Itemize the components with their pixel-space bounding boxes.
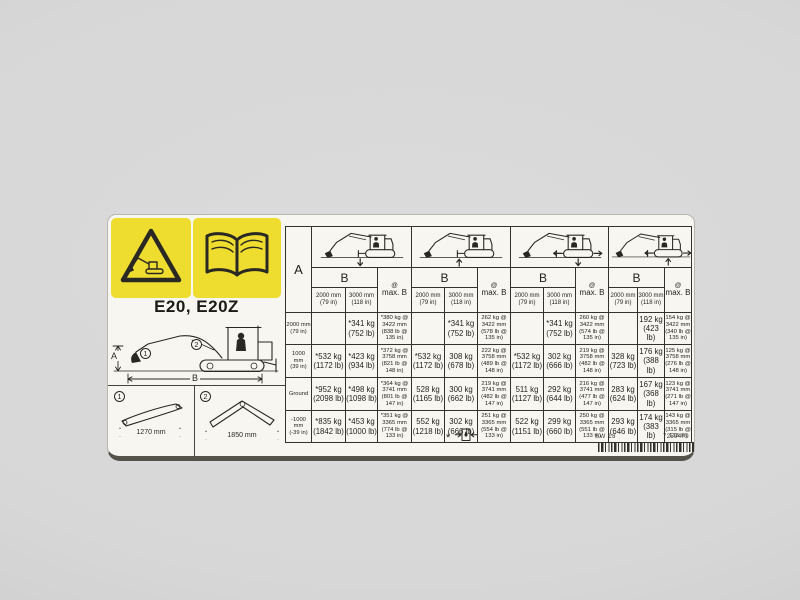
max-b-label: max. B	[382, 288, 407, 297]
capacity-cell: 123 kg @ 3741 mm (271 lb @ 147 in)	[665, 378, 692, 411]
b-header: B	[511, 268, 576, 288]
max-b-header: @max. B	[378, 268, 412, 313]
col-header-3000: 3000 mm (118 in)	[544, 288, 576, 313]
capacity-cell: 511 kg (1127 lb)	[511, 378, 544, 411]
manual-panel	[193, 218, 281, 298]
max-b-label: max. B	[482, 288, 507, 297]
over-side-blade-up-icon	[609, 227, 692, 268]
dim-b-label: B	[190, 373, 200, 383]
footnote-star: *	[446, 432, 450, 444]
capacity-cell: 262 kg @ 3422 mm (578 lb @ 135 in)	[478, 313, 511, 345]
capacity-cell: 302 kg (666 lb)	[544, 345, 576, 378]
capacity-cell	[412, 313, 445, 345]
row-header: Ground	[286, 378, 312, 411]
capacity-cell: 260 kg @ 3422 mm (574 lb @ 135 in)	[576, 313, 609, 345]
b-header: B	[312, 268, 378, 288]
capacity-cell	[511, 313, 544, 345]
part-number: 7259479	[663, 434, 689, 440]
capacity-cell: *498 kg (1098 lb)	[346, 378, 378, 411]
capacity-cell: *835 kg (1842 lb)	[312, 411, 346, 443]
max-b-header: @max. B	[478, 268, 511, 313]
capacity-cell: 522 kg (1151 lb)	[511, 411, 544, 443]
capacity-cell: 300 kg (662 lb)	[445, 378, 478, 411]
capacity-cell: 308 kg (678 lb)	[445, 345, 478, 378]
capacity-cell: 292 kg (644 lb)	[544, 378, 576, 411]
capacity-cell: 222 kg @ 3758 mm (489 lb @ 148 in)	[478, 345, 511, 378]
col-header-2000: 2000 mm (79 in)	[312, 288, 346, 313]
capacity-cell: 154 kg @ 3422 mm (340 lb @ 135 in)	[665, 313, 692, 345]
footnote: *	[446, 427, 479, 448]
capacity-cell: *380 kg @ 3422 mm (838 lb @ 135 in)	[378, 313, 412, 345]
capacity-cell: 192 kg (423 lb)	[638, 313, 665, 345]
capacity-cell: *453 kg (1000 lb)	[346, 411, 378, 443]
divider	[108, 385, 285, 386]
photo-background: E20, E20Z	[0, 0, 800, 600]
capacity-cell: *341 kg (752 lb)	[544, 313, 576, 345]
capacity-cell: 125 kg @ 3758 mm (276 lb @ 148 in)	[665, 345, 692, 378]
read-operators-manual-book-icon	[201, 229, 273, 288]
capacity-cell: 219 kg @ 3758 mm (482 lb @ 148 in)	[576, 345, 609, 378]
row-header: 2000 mm (79 in)	[286, 313, 312, 345]
option-1-width: 1270 mm	[116, 429, 186, 436]
capacity-cell: *364 kg @ 3741 mm (801 lb @ 147 in)	[378, 378, 412, 411]
capacity-cell: *532 kg (1172 lb)	[312, 345, 346, 378]
divider	[194, 385, 195, 457]
sw-code: SW 18	[595, 434, 616, 440]
capacity-cell: *372 kg @ 3758 mm (821 lb @ 148 in)	[378, 345, 412, 378]
capacity-cell: 283 kg (624 lb)	[609, 378, 638, 411]
capacity-cell: 176 kg (388 lb)	[638, 345, 665, 378]
col-header-2000: 2000 mm (79 in)	[609, 288, 638, 313]
over-side-blade-down-icon	[511, 227, 609, 268]
capacity-cell: *351 kg @ 3365 mm (774 lb @ 133 in)	[378, 411, 412, 443]
capacity-cell: 328 kg (723 lb)	[609, 345, 638, 378]
col-header-3000: 3000 mm (118 in)	[445, 288, 478, 313]
option-2-width: 1850 mm	[202, 432, 282, 439]
col-header-2000: 2000 mm (79 in)	[412, 288, 445, 313]
row-header: 1000 mm (39 in)	[286, 345, 312, 378]
capacity-cell: 174 kg (383 lb)	[638, 411, 665, 443]
max-b-label: max. B	[580, 288, 605, 297]
row-header: -1000 mm (-39 in)	[286, 411, 312, 443]
capacity-decal: E20, E20Z	[107, 214, 695, 461]
capacity-cell: 528 kg (1165 lb)	[412, 378, 445, 411]
barcode	[598, 442, 694, 452]
max-b-header: @max. B	[665, 268, 692, 313]
capacity-cell: *341 kg (752 lb)	[346, 313, 378, 345]
capacity-cell: *532 kg (1172 lb)	[511, 345, 544, 378]
model-title: E20, E20Z	[108, 297, 285, 317]
capacity-cell: *952 kg (2098 lb)	[312, 378, 346, 411]
over-front-blade-down-icon	[312, 227, 412, 268]
capacity-cell: 552 kg (1218 lb)	[412, 411, 445, 443]
capacity-cell	[609, 313, 638, 345]
capacity-cell: 167 kg (368 lb)	[638, 378, 665, 411]
lift-capacity-table: A B	[285, 226, 692, 443]
warning-triangle-excavator-icon	[119, 227, 183, 290]
callout-1: 1	[140, 348, 151, 359]
capacity-cell: 216 kg @ 3741 mm (477 lb @ 147 in)	[576, 378, 609, 411]
capacity-cell: *341 kg (752 lb)	[445, 313, 478, 345]
callout-2: 2	[191, 339, 202, 350]
over-front-blade-up-icon	[412, 227, 511, 268]
col-header-3000: 3000 mm (118 in)	[346, 288, 378, 313]
capacity-cell	[312, 313, 346, 345]
max-b-label: max. B	[666, 288, 691, 297]
col-header-2000: 2000 mm (79 in)	[511, 288, 544, 313]
capacity-cell: *423 kg (934 lb)	[346, 345, 378, 378]
capacity-cell: 299 kg (660 lb)	[544, 411, 576, 443]
warning-panel	[111, 218, 191, 298]
dim-a-label: A	[109, 351, 119, 361]
capacity-cell: *532 kg (1172 lb)	[412, 345, 445, 378]
corner-a-header: A	[286, 227, 312, 313]
capacity-cell: 219 kg @ 3741 mm (482 lb @ 147 in)	[478, 378, 511, 411]
b-header: B	[412, 268, 478, 288]
capacity-cell: 251 kg @ 3365 mm (554 lb @ 133 in)	[478, 411, 511, 443]
b-header: B	[609, 268, 665, 288]
hydraulic-capacity-limit-icon	[453, 427, 479, 448]
col-header-3000: 3000 mm (118 in)	[638, 288, 665, 313]
max-b-header: @max. B	[576, 268, 609, 313]
